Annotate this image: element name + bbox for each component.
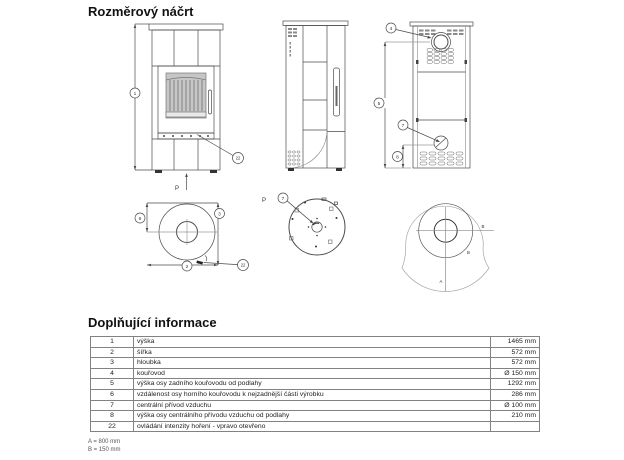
row-value: 286 mm <box>491 389 540 400</box>
row-description: výška osy zadního kouřovodu od podlahy <box>134 379 491 390</box>
callout-2: 2 <box>182 261 192 271</box>
side-view <box>283 21 348 171</box>
row-value: 572 mm <box>491 358 540 369</box>
row-value: 210 mm <box>491 411 540 422</box>
back-flue-height-dimension: 5 <box>374 42 430 168</box>
info-table: 1výška1465 mm2šířka572 mm3hloubka572 mm4… <box>90 336 540 432</box>
row-value: 572 mm <box>491 347 540 358</box>
callout-7-bottom: 7 <box>278 193 314 224</box>
front-door-handle <box>209 90 212 114</box>
row-number: 7 <box>91 400 134 411</box>
svg-text:22: 22 <box>236 156 241 161</box>
front-view: 1 22 P <box>130 24 244 192</box>
table-row: 22ovládání intenzity hoření - vpravo ote… <box>91 421 540 432</box>
table-row: 5výška osy zadního kouřovodu od podlahy1… <box>91 379 540 390</box>
svg-text:7: 7 <box>282 196 285 202</box>
back-bottom-vent-grid <box>420 152 463 165</box>
front-door-glass <box>166 73 206 118</box>
callout-3: 3 <box>215 209 225 219</box>
row-number: 4 <box>91 368 134 379</box>
svg-text:22: 22 <box>241 263 246 268</box>
svg-text:1: 1 <box>134 91 137 97</box>
svg-text:3: 3 <box>218 211 221 217</box>
row-description: hloubka <box>134 358 491 369</box>
back-upper-vent-grid <box>427 49 454 64</box>
section-title: Doplňující informace <box>88 315 217 330</box>
svg-text:8: 8 <box>396 154 399 160</box>
svg-text:7: 7 <box>402 123 405 129</box>
table-row: 6vzdálenost osy horního kouřovodu k nejz… <box>91 389 540 400</box>
p-arrow-front: P <box>175 173 188 192</box>
row-description: kouřovod <box>134 368 491 379</box>
side-bottom-vents <box>288 151 300 165</box>
svg-text:4: 4 <box>390 26 393 32</box>
row-value: Ø 150 mm <box>491 368 540 379</box>
floor-plate-view: B B A <box>402 204 494 292</box>
svg-text:5: 5 <box>378 101 381 107</box>
svg-text:P: P <box>175 186 179 192</box>
row-description: výška <box>134 337 491 348</box>
back-top-plate <box>410 22 473 26</box>
front-top-plate <box>149 24 223 30</box>
bottom-screw-marks <box>290 207 334 244</box>
callout-4: 4 <box>386 23 432 39</box>
table-row: 3hloubka572 mm <box>91 358 540 369</box>
row-value: 1465 mm <box>491 337 540 348</box>
row-description: ovládání intenzity hoření - vpravo otevř… <box>134 421 491 432</box>
bottom-body-circle <box>289 199 345 255</box>
side-feet <box>288 168 342 171</box>
footnote-a: A = 800 mm <box>88 438 121 446</box>
row-number: 6 <box>91 389 134 400</box>
dimensional-drawing: 1 22 P <box>0 0 624 312</box>
plate-b-right-label: B <box>482 224 485 229</box>
row-value <box>491 421 540 432</box>
table-row: 7centrální přívod vzduchuØ 100 mm <box>91 400 540 411</box>
info-table-body: 1výška1465 mm2šířka572 mm3hloubka572 mm4… <box>91 337 540 432</box>
table-row: 2šířka572 mm <box>91 347 540 358</box>
back-view: 4 5 7 8 <box>374 22 473 168</box>
front-control-band <box>158 133 214 139</box>
row-value: 1292 mm <box>491 379 540 390</box>
row-description: šířka <box>134 347 491 358</box>
row-number: 8 <box>91 411 134 422</box>
table-row: 8výška osy centrálního přívodu vzduchu o… <box>91 411 540 422</box>
row-number: 3 <box>91 358 134 369</box>
top-control-lever <box>196 256 207 265</box>
footnote-b: B = 150 mm <box>88 446 121 454</box>
plate-a-label: A <box>440 279 443 284</box>
top-view: 6 3 2 22 <box>135 203 249 271</box>
table-row: 4kouřovodØ 150 mm <box>91 368 540 379</box>
row-description: vzdálenost osy horního kouřovodu k nejza… <box>134 389 491 400</box>
front-feet <box>155 170 217 173</box>
back-air-inlet <box>434 136 448 150</box>
callout-6: 6 <box>135 213 145 223</box>
row-number: 1 <box>91 337 134 348</box>
p-label-bottom: P <box>262 198 266 204</box>
table-row: 1výška1465 mm <box>91 337 540 348</box>
row-number: 22 <box>91 421 134 432</box>
footnotes: A = 800 mm B = 150 mm <box>88 438 121 454</box>
side-rear-vents <box>288 28 297 57</box>
side-top-plate <box>283 21 348 26</box>
svg-text:6: 6 <box>139 216 142 222</box>
side-door-swing-arc <box>289 130 327 168</box>
svg-text:2: 2 <box>186 264 189 270</box>
row-number: 2 <box>91 347 134 358</box>
row-description: výška osy centrálního přívodu vzduchu od… <box>134 411 491 422</box>
row-description: centrální přívod vzduchu <box>134 400 491 411</box>
side-handle <box>334 68 340 116</box>
row-number: 5 <box>91 379 134 390</box>
plate-b-arc-label: B <box>467 250 470 255</box>
bottom-view: P 7 <box>262 193 345 255</box>
callout-7-back: 7 <box>398 120 440 142</box>
callout-1: 1 <box>130 88 140 98</box>
row-value: Ø 100 mm <box>491 400 540 411</box>
back-body <box>413 26 470 168</box>
